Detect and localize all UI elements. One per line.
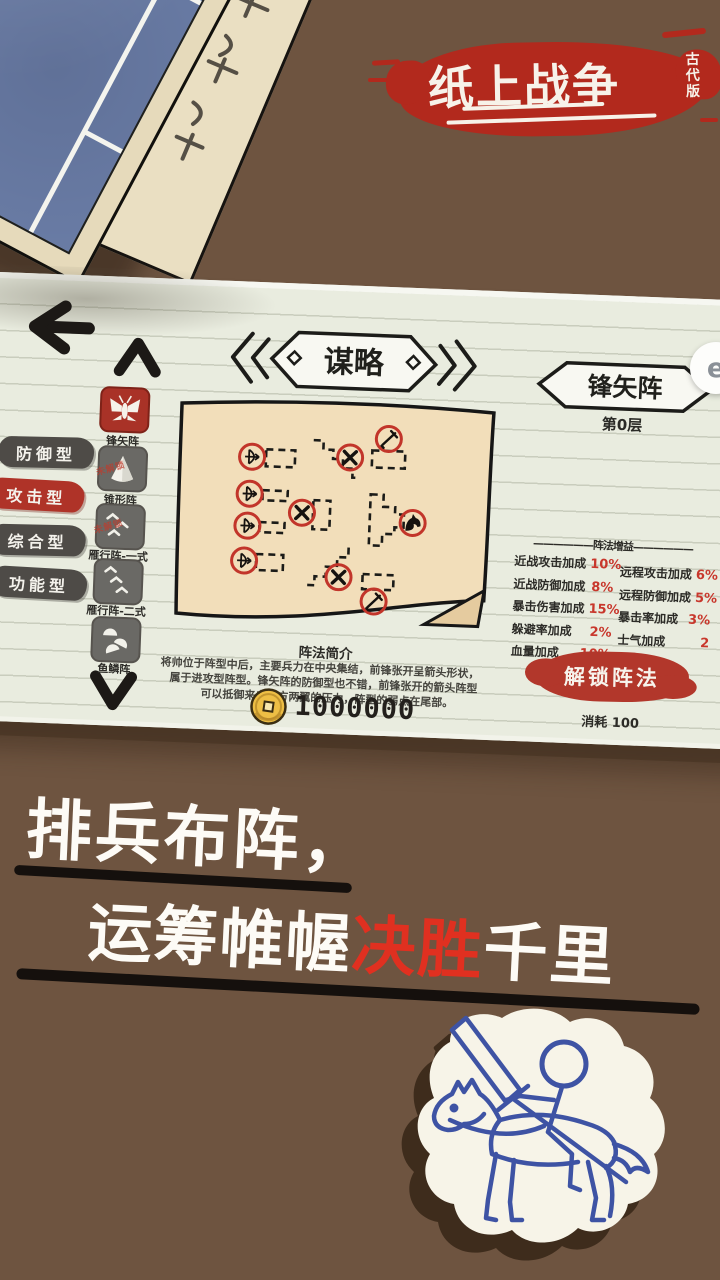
game-logo: 纸上战争 古代版	[399, 39, 711, 138]
category-tab-label: 防御型	[16, 440, 77, 465]
bonus-column-right: 远程攻击加成6% 远程防御加成5% 暴击率加成3% 士气加成2	[617, 563, 712, 656]
logo-ink-streak	[700, 118, 718, 122]
formation-map	[162, 391, 505, 638]
category-tab-label: 攻击型	[6, 481, 67, 508]
unlock-formation-button[interactable]: 解锁阵法	[534, 650, 689, 703]
game-logo-edition: 古代版	[681, 51, 702, 99]
floating-button-glyph: e	[707, 353, 720, 384]
formation-tile-yanxing-1[interactable]: 未解锁	[94, 503, 146, 551]
currency-amount: 1000000	[294, 691, 416, 727]
unlock-button-label: 解锁阵法	[564, 661, 661, 693]
prev-page-chevron	[252, 339, 268, 378]
back-arrow-button[interactable]	[18, 295, 98, 356]
strategy-screen-panel: 谋略 锋矢阵 第0层 防御型 攻击型 综合型 功能型 锋矢阵 未解锁 锥形阵	[0, 271, 720, 750]
formation-tile-zhuixing[interactable]: 未解锁	[97, 445, 149, 493]
scroll-up-chevron[interactable]	[111, 334, 165, 378]
wild-geese-icon	[101, 565, 136, 598]
moth-icon	[107, 393, 142, 426]
formation-layer-label: 第0层	[534, 411, 710, 439]
screen-title: 谋略	[323, 344, 385, 381]
formation-tile-fengshi[interactable]	[99, 386, 151, 434]
formation-tile-yanxing-2[interactable]	[92, 558, 144, 606]
category-tab-label: 功能型	[8, 570, 69, 597]
unlock-cost-label: 消耗 100	[533, 709, 688, 734]
next-page-chevron	[439, 346, 455, 385]
prev-page-chevron	[232, 333, 253, 382]
formation-bonus-table: ——————阵法增益—————— 近战攻击加成10% 近战防御加成8% 暴击伤害…	[513, 534, 713, 558]
screen-title-banner[interactable]: 谋略	[227, 325, 481, 399]
book-title-slip	[0, 0, 65, 178]
category-tab-label: 综合型	[7, 527, 68, 552]
coin-icon	[248, 686, 290, 728]
next-page-chevron	[455, 342, 476, 391]
category-tab-utility[interactable]: 功能型	[0, 565, 88, 601]
tagline-highlight: 决胜	[350, 909, 485, 989]
parchment	[174, 397, 494, 626]
book-stitch-tick	[83, 130, 122, 154]
knight-sticker	[392, 1002, 720, 1257]
selected-formation-banner: 锋矢阵	[535, 359, 715, 416]
book-stitch-tick	[162, 0, 201, 5]
selected-formation-name: 锋矢阵	[587, 372, 663, 404]
logo-ink-streak	[662, 28, 706, 39]
